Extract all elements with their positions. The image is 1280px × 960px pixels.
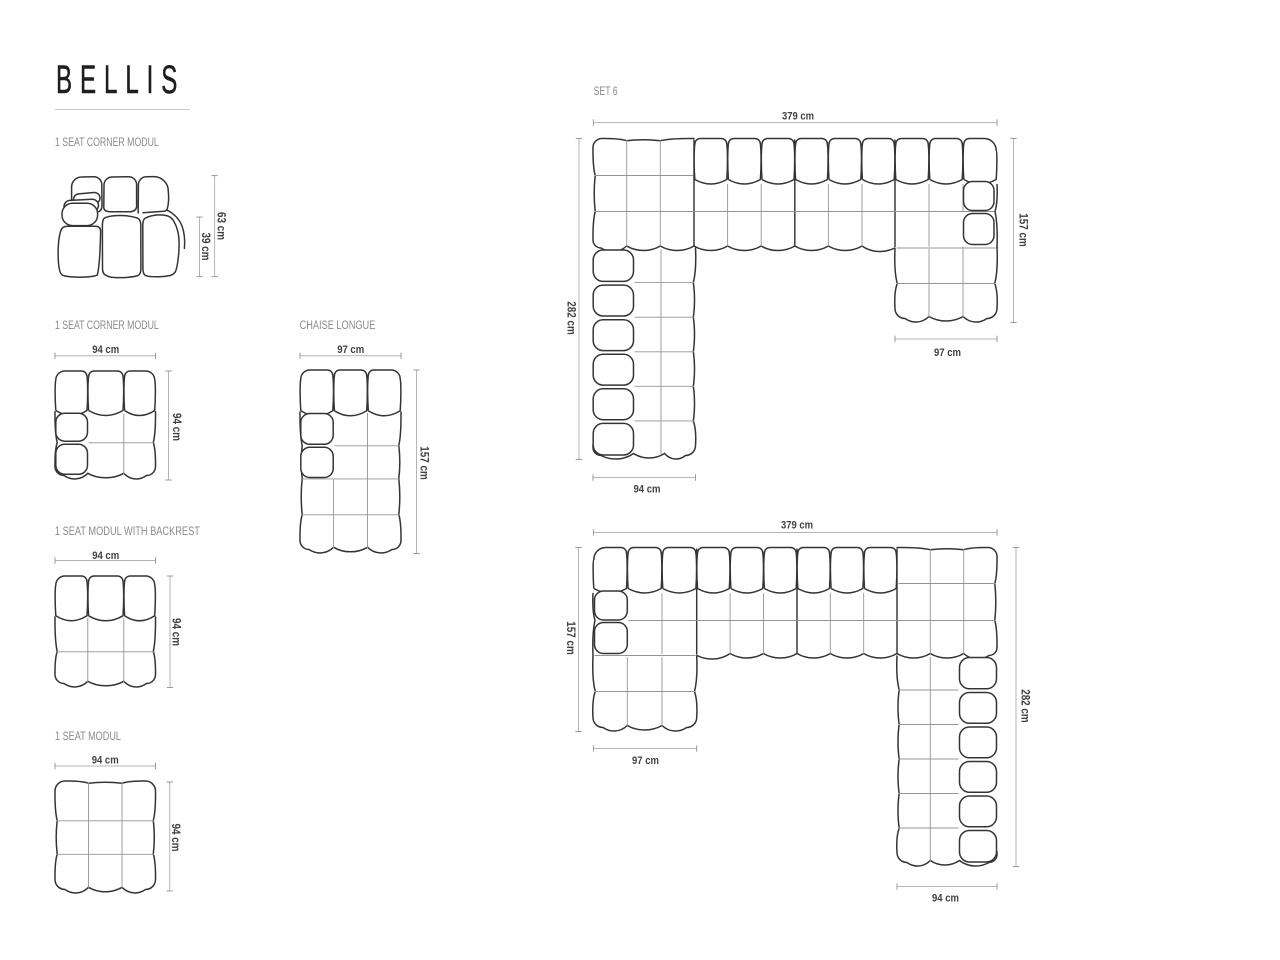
svg-text:SET 6: SET 6 — [594, 84, 618, 98]
svg-text:94 cm: 94 cm — [170, 413, 184, 441]
svg-text:1 SEAT MODUL: 1 SEAT MODUL — [55, 729, 121, 743]
svg-text:282 cm: 282 cm — [564, 301, 578, 335]
svg-text:1 SEAT MODUL WITH BACKREST: 1 SEAT MODUL WITH BACKREST — [55, 524, 200, 538]
svg-text:97 cm: 97 cm — [934, 347, 961, 359]
svg-text:94 cm: 94 cm — [170, 618, 184, 646]
svg-text:379 cm: 379 cm — [781, 520, 813, 532]
svg-text:94 cm: 94 cm — [92, 755, 119, 767]
svg-text:157 cm: 157 cm — [564, 621, 578, 655]
svg-text:157 cm: 157 cm — [1017, 213, 1031, 247]
svg-text:CHAISE LONGUE: CHAISE LONGUE — [300, 318, 376, 332]
svg-text:94 cm: 94 cm — [169, 824, 183, 852]
svg-text:97 cm: 97 cm — [337, 344, 364, 356]
svg-text:157 cm: 157 cm — [418, 446, 432, 480]
svg-text:94 cm: 94 cm — [92, 344, 119, 356]
svg-text:1 SEAT CORNER MODUL: 1 SEAT CORNER MODUL — [55, 135, 159, 149]
svg-text:282 cm: 282 cm — [1019, 689, 1033, 723]
svg-text:94 cm: 94 cm — [634, 484, 661, 496]
svg-text:63 cm: 63 cm — [215, 212, 229, 240]
svg-text:39 cm: 39 cm — [199, 233, 213, 261]
svg-text:1 SEAT CORNER MODUL: 1 SEAT CORNER MODUL — [55, 318, 159, 332]
svg-text:379 cm: 379 cm — [782, 111, 814, 123]
svg-text:94 cm: 94 cm — [932, 893, 959, 905]
svg-text:94 cm: 94 cm — [92, 550, 119, 562]
svg-text:97 cm: 97 cm — [632, 755, 659, 767]
